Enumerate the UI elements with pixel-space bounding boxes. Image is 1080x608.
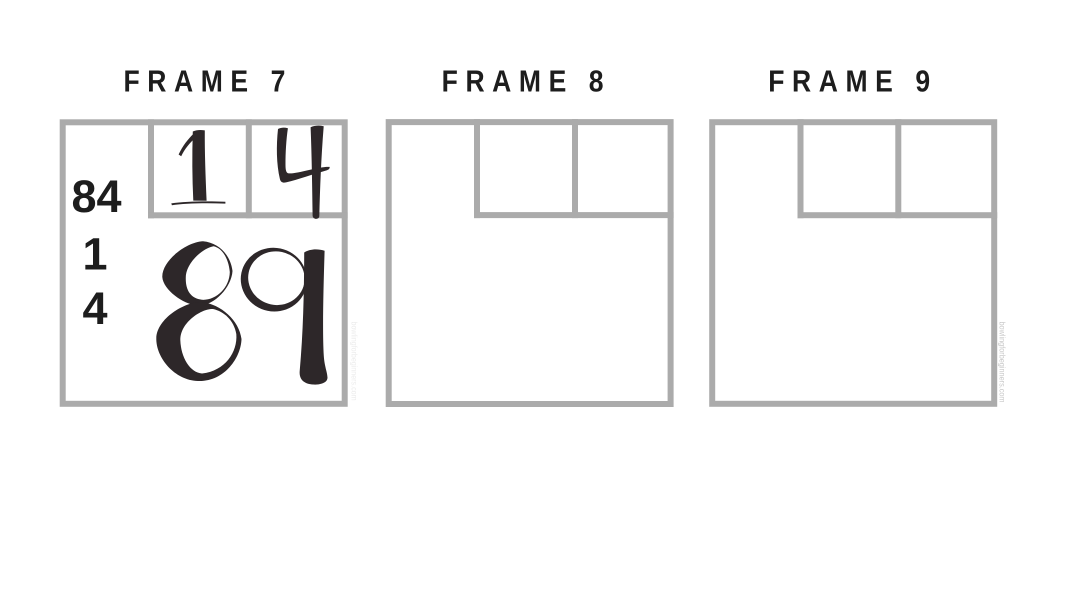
svg-text:4: 4 — [82, 283, 107, 334]
svg-text:bowlingforbeginners.com: bowlingforbeginners.com — [997, 322, 1006, 403]
svg-text:FRAME 9: FRAME 9 — [768, 65, 937, 99]
svg-text:FRAME 8: FRAME 8 — [442, 65, 611, 99]
svg-text:FRAME 7: FRAME 7 — [123, 65, 292, 99]
svg-text:84: 84 — [72, 171, 122, 222]
svg-text:bowlingforbeginners.com: bowlingforbeginners.com — [349, 322, 358, 401]
svg-text:1: 1 — [82, 229, 107, 280]
